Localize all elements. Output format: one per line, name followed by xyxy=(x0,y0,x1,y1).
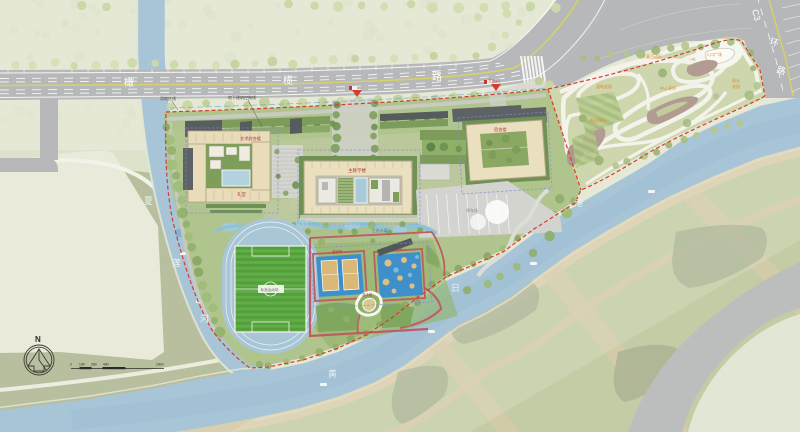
svg-text:标准运动场: 标准运动场 xyxy=(261,287,279,292)
svg-text:游泳馆: 游泳馆 xyxy=(362,292,373,297)
svg-text:花园: 花园 xyxy=(732,83,740,89)
svg-text:湿地花园: 湿地花园 xyxy=(596,83,612,89)
svg-text:黄: 黄 xyxy=(328,368,337,379)
svg-text:主教学楼: 主教学楼 xyxy=(348,167,366,174)
svg-text:入口广场: 入口广场 xyxy=(706,51,722,57)
svg-text:20m: 20m xyxy=(91,363,98,367)
svg-text:夏: 夏 xyxy=(144,196,153,206)
svg-text:日: 日 xyxy=(451,283,460,293)
svg-text:宿舍楼: 宿舍楼 xyxy=(494,126,507,133)
svg-text:莲: 莲 xyxy=(172,257,181,268)
svg-text:N: N xyxy=(35,335,41,344)
svg-text:艺术综合楼: 艺术综合楼 xyxy=(240,135,261,142)
svg-text:榄: 榄 xyxy=(283,74,293,87)
svg-text:阳光草坪: 阳光草坪 xyxy=(590,117,606,123)
svg-text:礼堂: 礼堂 xyxy=(237,191,246,198)
svg-text:篮球场: 篮球场 xyxy=(332,249,343,254)
svg-text:河: 河 xyxy=(200,313,209,324)
svg-text:主入口: 主入口 xyxy=(488,77,500,83)
svg-text:100m: 100m xyxy=(156,363,164,367)
svg-text:10m: 10m xyxy=(79,363,86,367)
svg-text:港: 港 xyxy=(574,197,583,208)
svg-text:地下建筑控制线: 地下建筑控制线 xyxy=(228,94,256,100)
svg-text:40m: 40m xyxy=(103,363,110,367)
svg-text:0: 0 xyxy=(70,363,72,367)
svg-text:停车场: 停车场 xyxy=(466,207,478,213)
svg-text:儿童活动区: 儿童活动区 xyxy=(642,53,662,59)
svg-text:中心草坪: 中心草坪 xyxy=(660,85,676,91)
svg-text:用地红线: 用地红线 xyxy=(160,95,176,101)
svg-text:生态水渠: 生态水渠 xyxy=(372,228,387,233)
svg-text:雨水: 雨水 xyxy=(732,77,740,83)
svg-text:橄: 橄 xyxy=(124,76,134,89)
svg-text:路: 路 xyxy=(432,70,442,83)
